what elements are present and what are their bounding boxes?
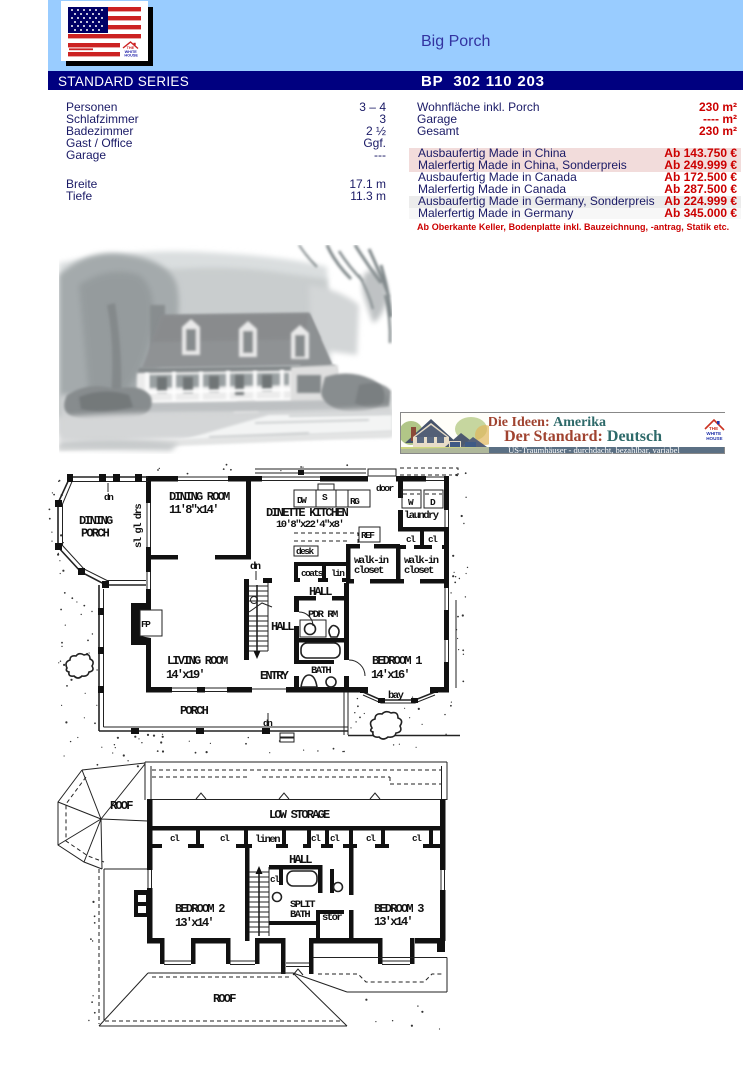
svg-text:cl: cl — [406, 534, 416, 545]
svg-text:BEDROOM 3: BEDROOM 3 — [374, 902, 424, 916]
svg-text:W: W — [408, 497, 414, 508]
svg-text:laundry: laundry — [404, 510, 440, 522]
svg-text:closet: closet — [354, 565, 384, 577]
svg-text:REF: REF — [361, 530, 375, 541]
svg-text:desk: desk — [296, 546, 314, 557]
svg-text:11'8"x14': 11'8"x14' — [169, 503, 218, 517]
svg-text:cl: cl — [270, 874, 280, 885]
svg-text:bay: bay — [388, 690, 405, 702]
svg-text:DW: DW — [297, 495, 307, 506]
svg-text:cl: cl — [220, 833, 230, 844]
svg-text:14'x16': 14'x16' — [371, 668, 409, 682]
svg-text:cl: cl — [330, 833, 340, 844]
svg-text:ROOF: ROOF — [110, 799, 133, 813]
svg-text:dn: dn — [104, 492, 114, 503]
svg-text:sl gl drs: sl gl drs — [133, 504, 145, 548]
svg-text:cl: cl — [428, 534, 438, 545]
svg-text:PORCH: PORCH — [180, 704, 209, 718]
svg-text:door: door — [376, 483, 394, 494]
svg-text:D: D — [430, 497, 436, 508]
svg-text:S: S — [322, 492, 328, 503]
svg-text:closet: closet — [404, 565, 434, 577]
svg-text:HALL: HALL — [271, 620, 294, 634]
svg-text:HALL: HALL — [289, 853, 312, 867]
svg-text:linen: linen — [255, 834, 280, 846]
svg-text:10'8"x22'4"x8': 10'8"x22'4"x8' — [276, 519, 343, 531]
svg-text:PDR RM: PDR RM — [308, 609, 338, 621]
svg-text:coats: coats — [301, 568, 324, 579]
svg-text:13'x14': 13'x14' — [175, 916, 213, 930]
svg-text:cl: cl — [366, 833, 376, 844]
svg-text:ROOF: ROOF — [213, 992, 236, 1006]
svg-text:stor: stor — [322, 912, 342, 924]
svg-text:BATH: BATH — [290, 909, 310, 921]
svg-text:14'x19': 14'x19' — [166, 668, 204, 682]
svg-text:RG: RG — [350, 496, 360, 507]
svg-text:cl: cl — [311, 833, 321, 844]
svg-text:dn: dn — [250, 561, 261, 573]
svg-text:13'x14': 13'x14' — [374, 915, 412, 929]
svg-text:LIVING ROOM: LIVING ROOM — [167, 654, 228, 668]
svg-text:LOW STORAGE: LOW STORAGE — [269, 808, 330, 822]
svg-text:lin: lin — [331, 568, 345, 579]
svg-text:BEDROOM 2: BEDROOM 2 — [175, 902, 225, 916]
svg-text:cl: cl — [412, 833, 422, 844]
svg-text:BEDROOM 1: BEDROOM 1 — [372, 654, 422, 668]
svg-text:DINETTE KITCHEN: DINETTE KITCHEN — [266, 506, 349, 520]
svg-text:ENTRY: ENTRY — [260, 669, 290, 683]
svg-text:BATH: BATH — [311, 665, 331, 677]
svg-text:DINING ROOM: DINING ROOM — [169, 490, 230, 504]
svg-text:cl: cl — [170, 833, 180, 844]
svg-text:PORCH: PORCH — [81, 527, 110, 541]
